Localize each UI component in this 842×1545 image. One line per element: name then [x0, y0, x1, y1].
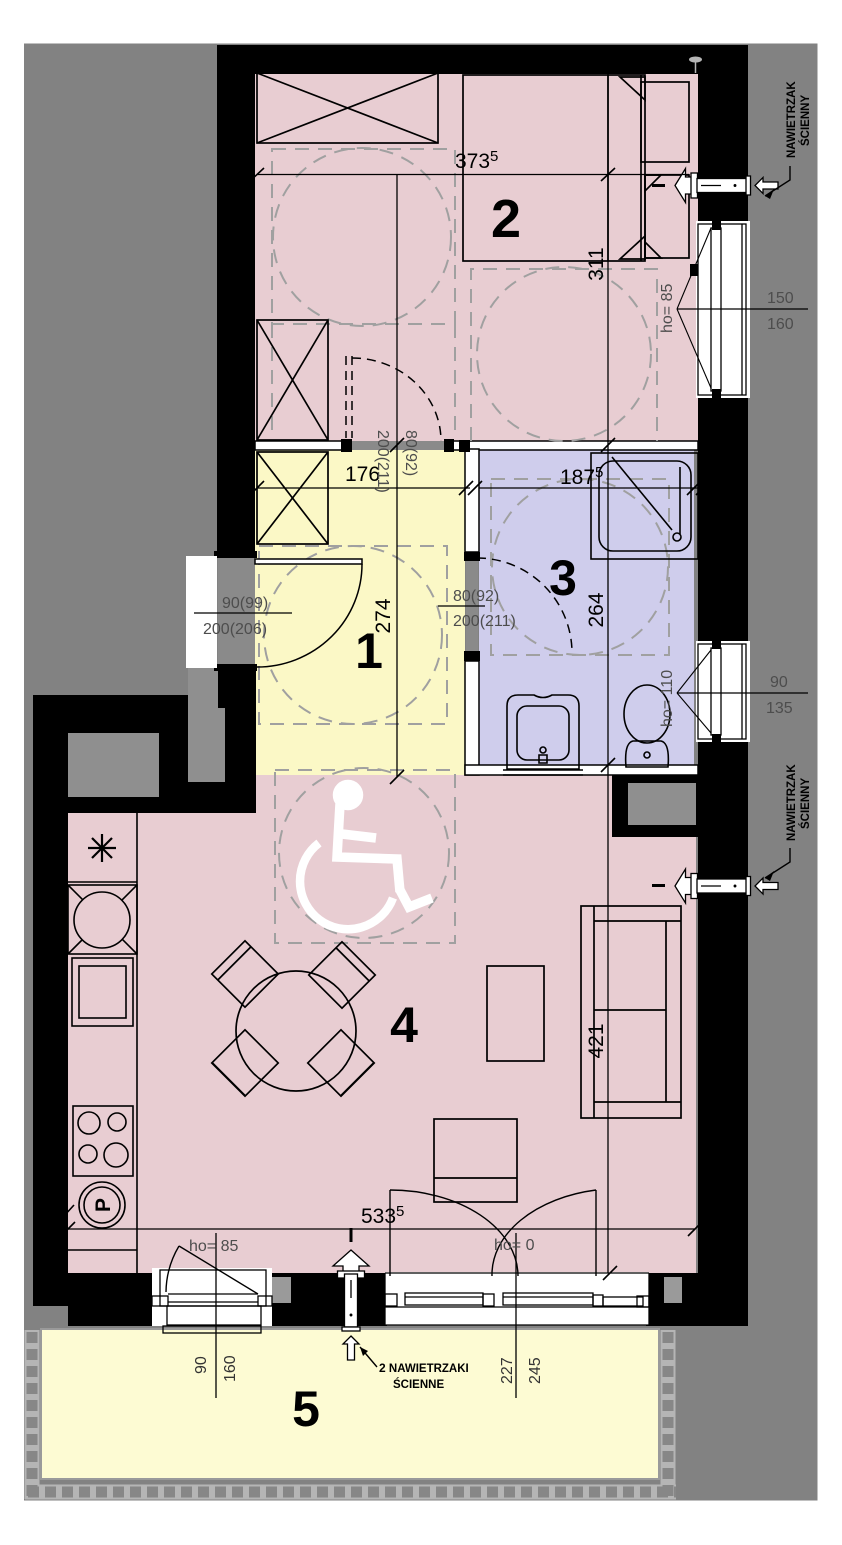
svg-text:264: 264: [585, 592, 608, 627]
svg-text:200(211): 200(211): [453, 613, 516, 630]
svg-text:90(99): 90(99): [222, 595, 268, 612]
svg-text:ŚCIENNY: ŚCIENNY: [799, 95, 812, 146]
svg-text:2 NAWIETRZAKI: 2 NAWIETRZAKI: [379, 1361, 469, 1375]
svg-text:227: 227: [499, 1357, 516, 1384]
svg-text:311: 311: [585, 247, 608, 280]
svg-text:NAWIETRZAK: NAWIETRZAK: [786, 81, 798, 158]
svg-text:P: P: [92, 1198, 115, 1212]
svg-text:4: 4: [390, 997, 418, 1053]
svg-text:160: 160: [222, 1355, 239, 1382]
svg-text:421: 421: [585, 1023, 608, 1058]
svg-text:ho= 0: ho= 0: [494, 1237, 535, 1254]
svg-text:160: 160: [767, 316, 794, 333]
svg-text:ho= 110: ho= 110: [659, 670, 676, 727]
svg-text:90: 90: [193, 1356, 210, 1374]
svg-text:3: 3: [549, 550, 577, 606]
svg-text:ho= 85: ho= 85: [659, 284, 676, 333]
svg-text:274: 274: [372, 598, 395, 633]
svg-text:200(211): 200(211): [374, 430, 391, 493]
svg-text:80(92): 80(92): [453, 588, 499, 605]
svg-text:2: 2: [491, 189, 521, 249]
svg-text:ŚCIENNE: ŚCIENNE: [393, 1378, 444, 1391]
svg-text:135: 135: [766, 700, 793, 717]
svg-text:NAWIETRZAK: NAWIETRZAK: [786, 764, 798, 841]
svg-text:80(92): 80(92): [402, 430, 419, 476]
svg-text:ŚCIENNY: ŚCIENNY: [799, 778, 812, 829]
svg-text:245: 245: [527, 1357, 544, 1384]
svg-text:90: 90: [770, 674, 788, 691]
svg-text:ho= 85: ho= 85: [189, 1238, 238, 1255]
svg-text:200(206): 200(206): [203, 621, 267, 638]
svg-text:150: 150: [767, 290, 794, 307]
svg-text:5: 5: [292, 1381, 320, 1437]
